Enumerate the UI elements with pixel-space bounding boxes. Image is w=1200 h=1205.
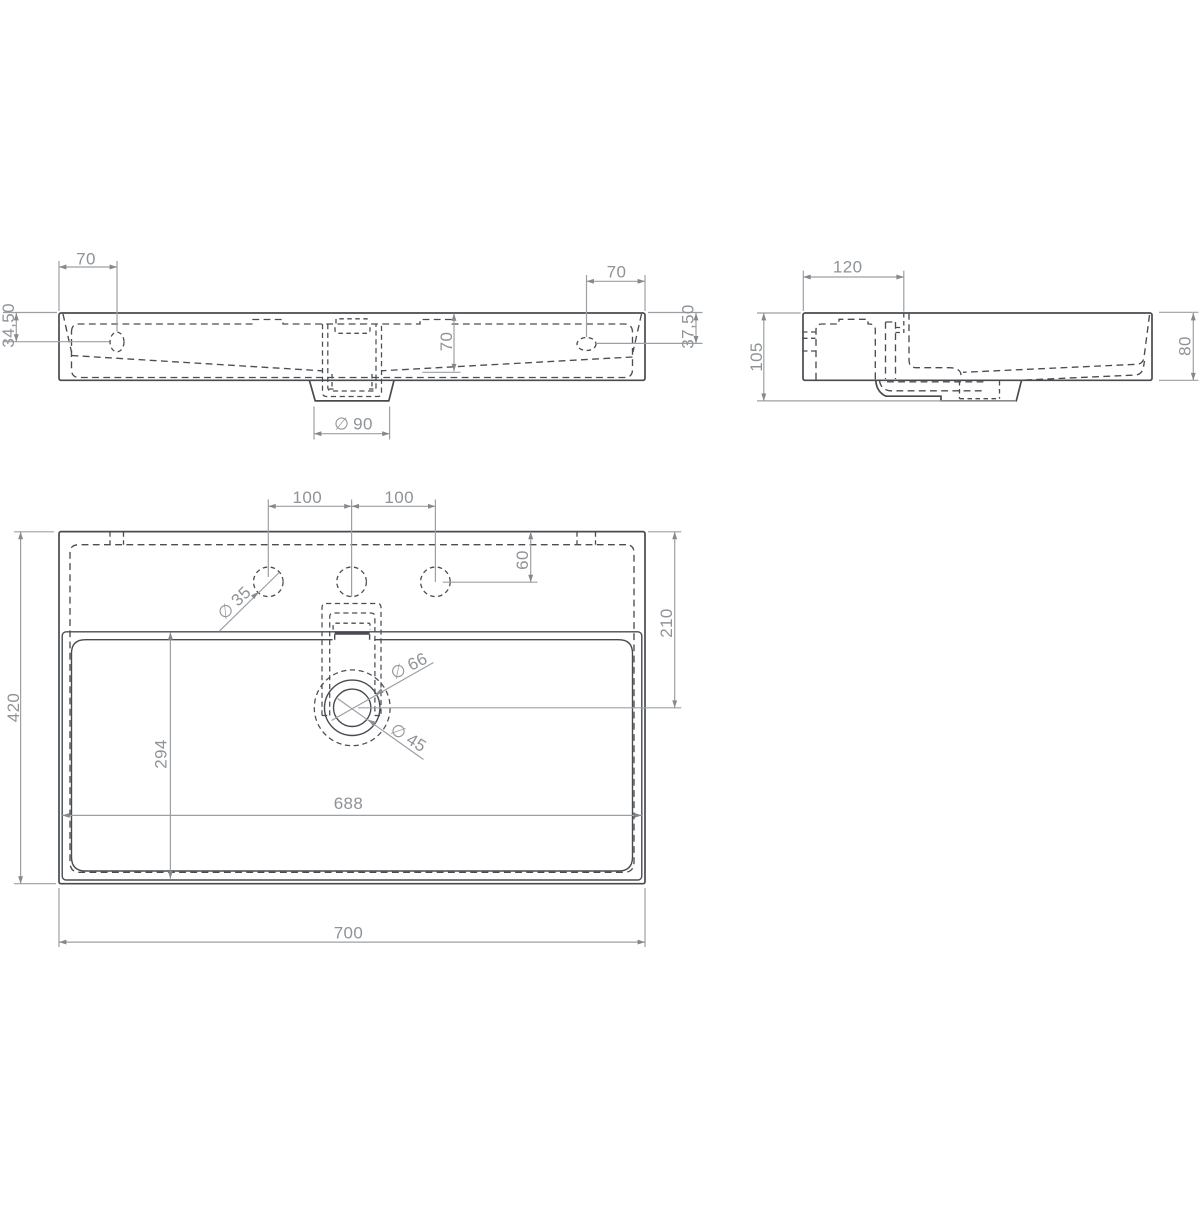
- svg-text:∅ 90: ∅ 90: [334, 415, 373, 434]
- svg-text:105: 105: [747, 342, 766, 372]
- svg-text:420: 420: [4, 693, 23, 723]
- svg-text:80: 80: [1176, 336, 1195, 356]
- svg-text:120: 120: [833, 258, 863, 277]
- svg-text:100: 100: [384, 488, 414, 507]
- svg-text:37,50: 37,50: [679, 304, 698, 349]
- svg-text:210: 210: [657, 608, 676, 638]
- svg-text:700: 700: [334, 924, 364, 943]
- svg-text:70: 70: [607, 263, 627, 282]
- svg-text:294: 294: [152, 739, 171, 769]
- svg-text:70: 70: [437, 332, 456, 352]
- svg-text:100: 100: [293, 488, 323, 507]
- svg-text:34,50: 34,50: [0, 303, 18, 348]
- svg-text:70: 70: [76, 250, 96, 269]
- svg-text:60: 60: [513, 550, 532, 570]
- svg-text:688: 688: [334, 794, 364, 813]
